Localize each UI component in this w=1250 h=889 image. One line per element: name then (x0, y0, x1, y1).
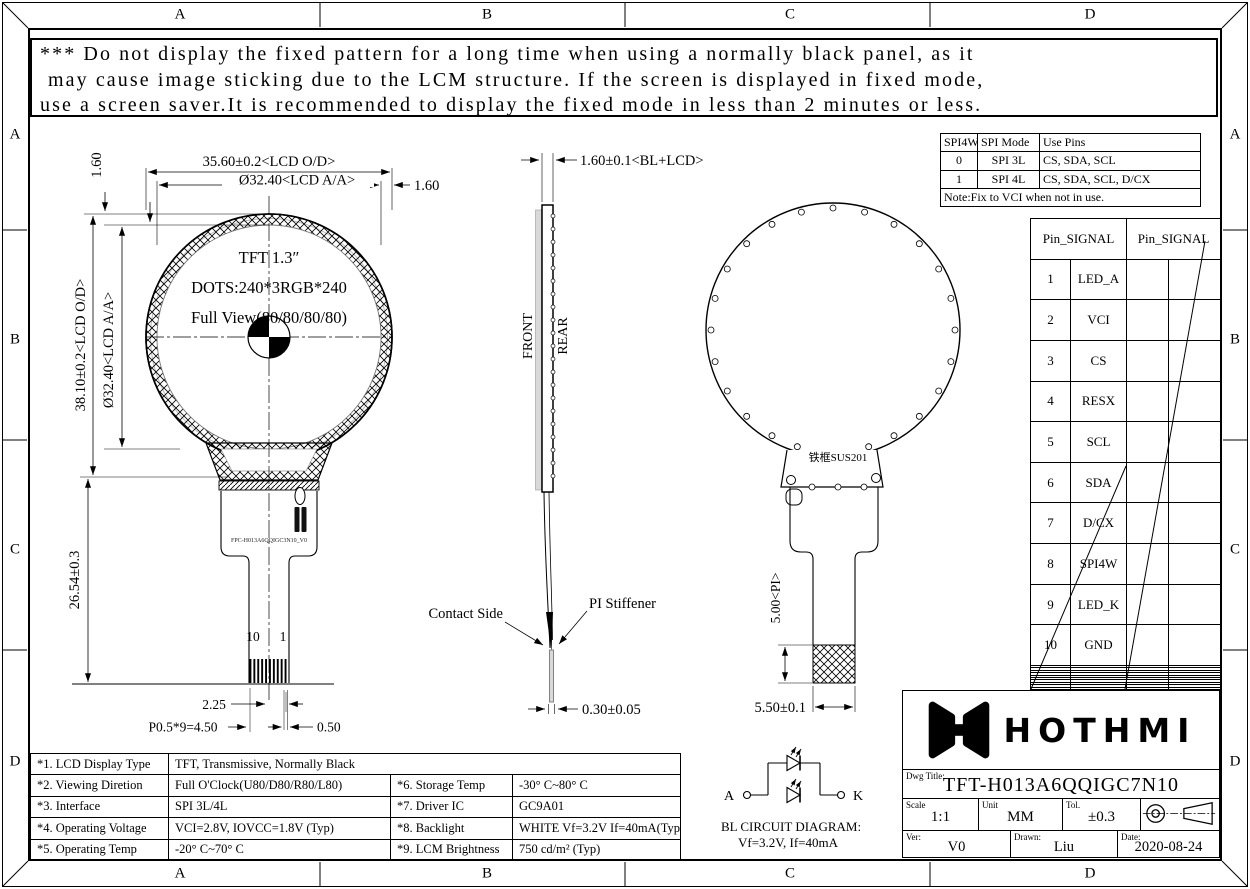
pin-no: 6 (1031, 462, 1071, 503)
pin-cell-empty (1127, 259, 1169, 300)
spec-value: -30° C~80° C (513, 775, 681, 796)
pin-cell-empty (1127, 503, 1169, 544)
pin-table-wrap: Pin_SIGNAL Pin_SIGNAL 1LED_A 2VCI 3CS 4R… (1030, 218, 1220, 690)
scale-cell: Scale 1:1 (903, 799, 979, 830)
zone-left-c: C (10, 542, 20, 559)
spec-table: *1. LCD Display Type TFT, Transmissive, … (30, 753, 681, 861)
zone-bottom-c: C (785, 866, 795, 883)
zone-bottom-d: D (1085, 866, 1096, 883)
pin-cell-empty (1169, 625, 1221, 666)
spec-key: *6. Storage Temp (391, 775, 513, 796)
dwg-title: TFT-H013A6QQIGC7N10 (903, 770, 1219, 800)
pin-signal: SCL (1071, 422, 1127, 463)
pin-no: 7 (1031, 503, 1071, 544)
zone-right-b: B (1230, 332, 1240, 349)
spec-key: *8. Backlight (391, 818, 513, 839)
date-label: Date: (1121, 832, 1141, 842)
pin-no: 10 (1031, 625, 1071, 666)
pin-signal: RESX (1071, 381, 1127, 422)
scale-row: Scale 1:1 Unit MM Tol. ±0.3 (903, 799, 1219, 831)
version-row: Ver: V0 Drawn: Liu Date: 2020-08-24 (903, 831, 1219, 858)
pin-cell-empty (1169, 300, 1221, 341)
pin-cell-empty (1169, 544, 1221, 585)
spec-value: TFT, Transmissive, Normally Black (169, 754, 681, 775)
zone-top-b: B (482, 7, 492, 24)
hothmi-logo-icon (926, 701, 992, 759)
spi-header-pins: Use Pins (1040, 134, 1201, 152)
drawn-cell: Drawn: Liu (1011, 831, 1118, 858)
spi-cell: CS, SDA, SCL, D/CX (1040, 170, 1201, 188)
ver-cell: Ver: V0 (903, 831, 1011, 858)
pin-cell-empty (1169, 259, 1221, 300)
pin-no: 4 (1031, 381, 1071, 422)
spi-cell: 0 (941, 152, 978, 170)
spi-mode-table: SPI4W SPI Mode Use Pins 0 SPI 3L CS, SDA… (940, 133, 1201, 207)
pin-signal: LED_K (1071, 584, 1127, 625)
pin-cell-empty (1127, 340, 1169, 381)
pin-no: 3 (1031, 340, 1071, 381)
spec-key: *2. Viewing Diretion (31, 775, 169, 796)
pin-cell-empty (1127, 422, 1169, 463)
projection-cell (1141, 799, 1219, 830)
spi-cell: SPI 4L (978, 170, 1040, 188)
zone-top-a: A (175, 7, 186, 24)
pin-cell-empty (1169, 422, 1221, 463)
dwg-title-label: Dwg Title: (906, 771, 945, 781)
unit-cell: Unit MM (979, 799, 1063, 830)
pin-no: 5 (1031, 422, 1071, 463)
date-cell: Date: 2020-08-24 (1118, 831, 1219, 858)
tol-label: Tol. (1066, 800, 1080, 810)
pin-signal: CS (1071, 340, 1127, 381)
zone-bottom-b: B (482, 866, 492, 883)
dwg-title-row: Dwg Title: TFT-H013A6QQIGC7N10 (903, 770, 1219, 799)
pin-cell-empty (1169, 381, 1221, 422)
spec-key: *9. LCM Brightness (391, 839, 513, 860)
zone-right-d: D (1230, 754, 1241, 771)
spec-key: *5. Operating Temp (31, 839, 169, 860)
pin-cell-empty (1169, 584, 1221, 625)
pin-no: 8 (1031, 544, 1071, 585)
pin-cell-empty (1127, 462, 1169, 503)
spec-key: *4. Operating Voltage (31, 818, 169, 839)
ver-label: Ver: (906, 832, 921, 842)
pin-signal: LED_A (1071, 259, 1127, 300)
logo: HOTHMI (903, 691, 1219, 770)
pin-cell-empty (1127, 625, 1169, 666)
spec-key: *1. LCD Display Type (31, 754, 169, 775)
pin-signal: VCI (1071, 300, 1127, 341)
spec-value: SPI 3L/4L (169, 796, 391, 817)
warning-line-3: use a screen saver.It is recommended to … (40, 93, 1208, 119)
zone-right-c: C (1230, 542, 1240, 559)
unit-label: Unit (982, 800, 998, 810)
spi-note: Note:Fix to VCI when not in use. (941, 188, 1201, 206)
pin-cell-empty (1169, 503, 1221, 544)
warning-line-1: *** Do not display the fixed pattern for… (40, 42, 1208, 68)
spi-header-spi4w: SPI4W (941, 134, 978, 152)
spi-cell: 1 (941, 170, 978, 188)
tol-cell: Tol. ±0.3 (1063, 799, 1141, 830)
warning-line-2: may cause image sticking due to the LCM … (40, 68, 1208, 94)
zone-left-b: B (10, 332, 20, 349)
pin-signal: SDA (1071, 462, 1127, 503)
pin-no: 9 (1031, 584, 1071, 625)
drawing-sheet: TFT 1.3″ DOTS:240*3RGB*240 Full View(80/… (0, 0, 1250, 889)
spi-cell: CS, SDA, SCL (1040, 152, 1201, 170)
spec-key: *7. Driver IC (391, 796, 513, 817)
spec-value: Full O'Clock(U80/D80/R80/L80) (169, 775, 391, 796)
zone-right-a: A (1230, 127, 1241, 144)
zone-top-c: C (785, 7, 795, 24)
pin-no: 2 (1031, 300, 1071, 341)
pin-cell-empty (1127, 300, 1169, 341)
zone-top-d: D (1085, 7, 1096, 24)
drawn-label: Drawn: (1014, 832, 1041, 842)
pin-table: Pin_SIGNAL Pin_SIGNAL 1LED_A 2VCI 3CS 4R… (1030, 218, 1221, 690)
pin-signal: SPI4W (1071, 544, 1127, 585)
spec-value: VCI=2.8V, IOVCC=1.8V (Typ) (169, 818, 391, 839)
spec-value: -20° C~70° C (169, 839, 391, 860)
pin-signal: D/CX (1071, 503, 1127, 544)
zone-left-a: A (10, 127, 21, 144)
warning-note: *** Do not display the fixed pattern for… (30, 38, 1218, 117)
spec-value: WHITE Vf=3.2V If=40mA(Typ) (513, 818, 681, 839)
third-angle-projection-icon (1141, 799, 1217, 828)
pin-no: 1 (1031, 259, 1071, 300)
title-block: HOTHMI Dwg Title: TFT-H013A6QQIGC7N10 Sc… (902, 690, 1220, 858)
pin-cell-empty (1127, 544, 1169, 585)
zone-bottom-a: A (175, 866, 186, 883)
pin-header-right: Pin_SIGNAL (1127, 219, 1221, 260)
pin-signal: GND (1071, 625, 1127, 666)
spec-value: GC9A01 (513, 796, 681, 817)
pin-header-left: Pin_SIGNAL (1031, 219, 1127, 260)
pin-cell-empty (1127, 381, 1169, 422)
logo-text: HOTHMI (1004, 711, 1197, 750)
pin-cell-empty (1127, 584, 1169, 625)
pin-cell-empty (1169, 340, 1221, 381)
scale-label: Scale (906, 800, 926, 810)
pin-cell-empty (1169, 462, 1221, 503)
zone-left-d: D (10, 754, 21, 771)
spi-cell: SPI 3L (978, 152, 1040, 170)
spi-header-mode: SPI Mode (978, 134, 1040, 152)
spec-key: *3. Interface (31, 796, 169, 817)
spec-value: 750 cd/m² (Typ) (513, 839, 681, 860)
